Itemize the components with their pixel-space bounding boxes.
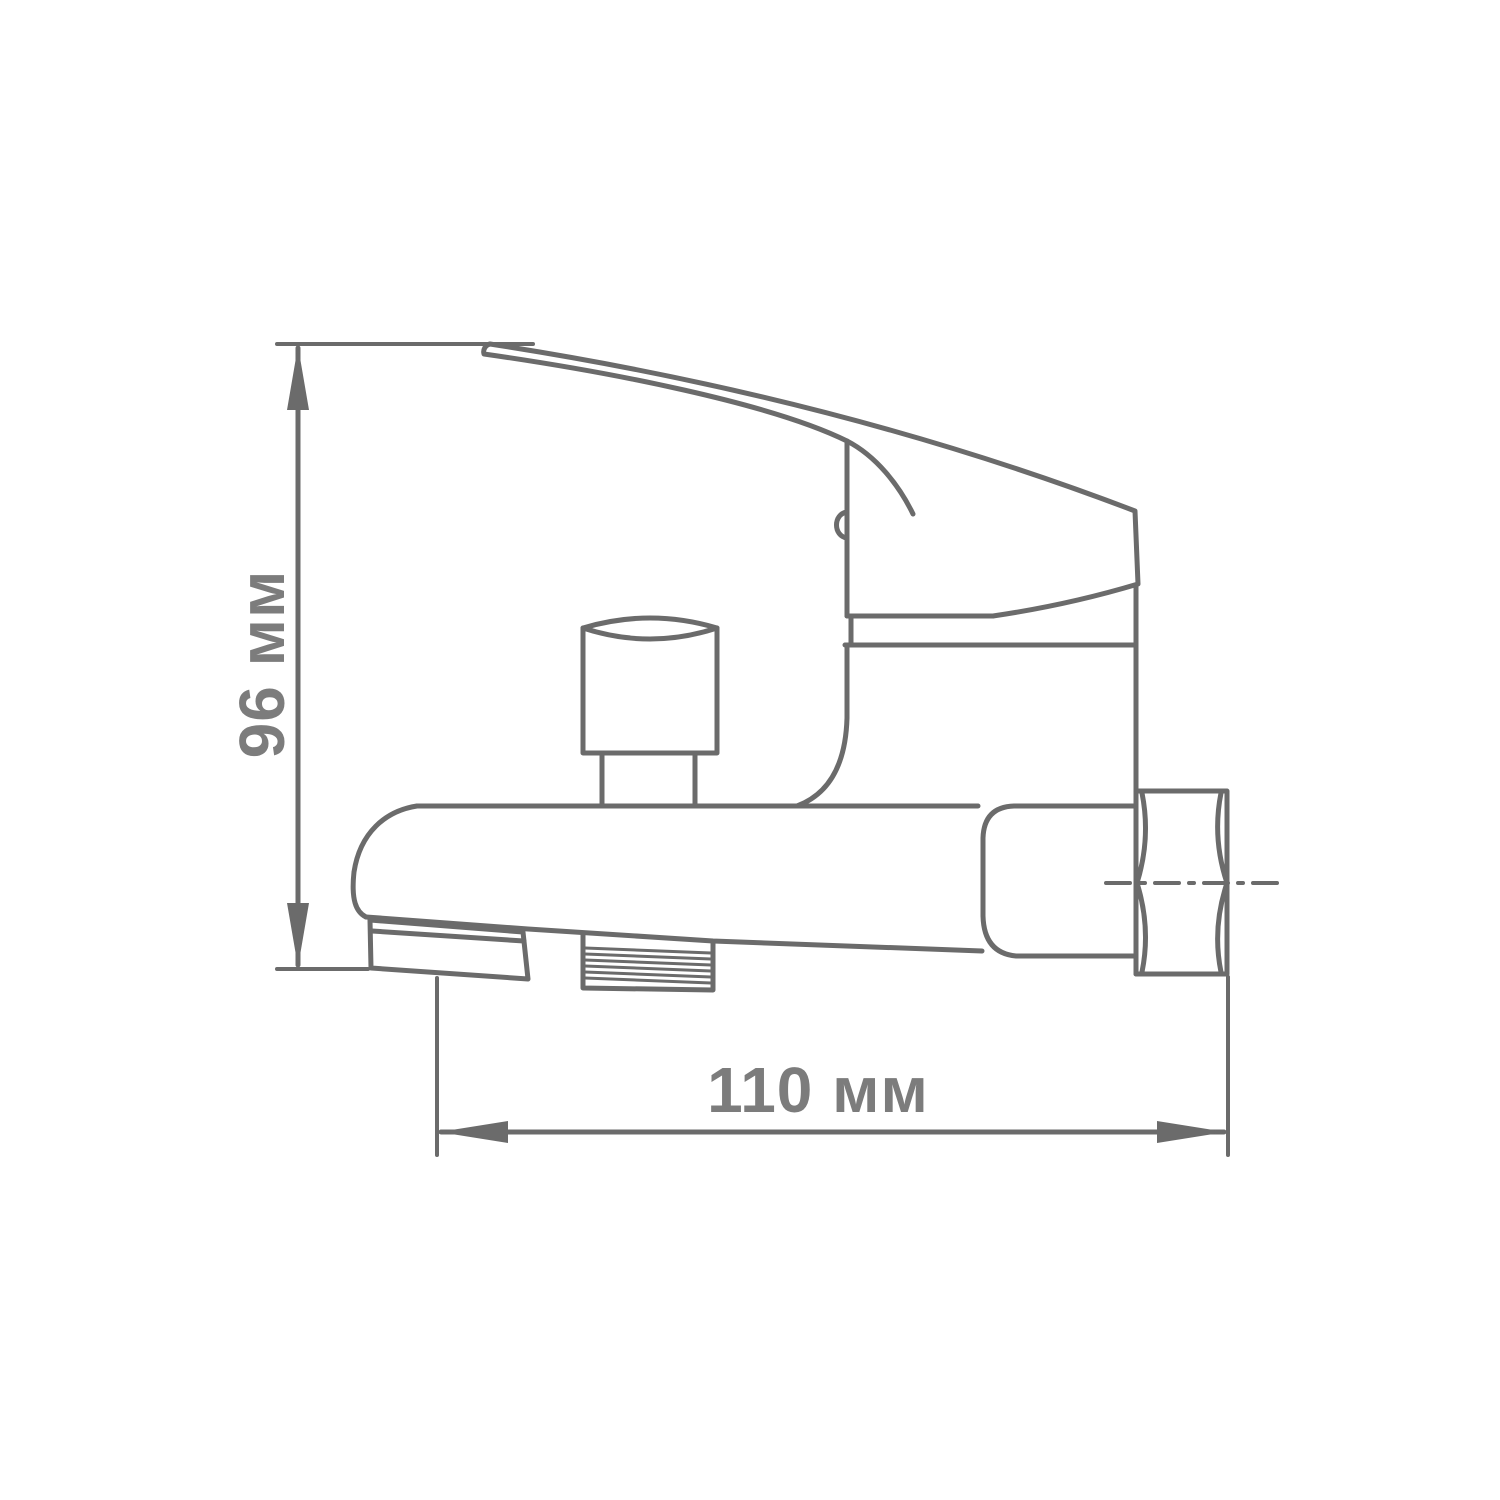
height-arrow-down (287, 903, 309, 967)
diverter-knob-stem (602, 753, 695, 805)
spout-left-end (353, 806, 417, 917)
width-arrow-left (439, 1121, 508, 1143)
dimension-arrows (287, 346, 1226, 1143)
diverter-knob-top-rim (583, 618, 717, 639)
faucet-dimension-drawing: 96 мм 110 мм (0, 0, 1500, 1500)
height-arrow-up (287, 346, 309, 410)
faucet-drawing (353, 344, 1280, 990)
dimension-annotations: 96 мм 110 мм (226, 344, 1228, 1155)
lever-handle-top-edge (490, 344, 1138, 616)
extension-lines (277, 344, 1228, 1155)
width-arrow-right (1157, 1121, 1226, 1143)
spout-tip (370, 920, 528, 979)
body-lower-left (797, 645, 847, 806)
width-dimension-label: 110 мм (707, 1054, 929, 1126)
drawing-canvas: 96 мм 110 мм (0, 0, 1500, 1500)
diverter-knob (583, 628, 717, 753)
height-dimension-label: 96 мм (226, 570, 298, 759)
cap-ring (845, 616, 1136, 645)
spout-bottom-edge (366, 917, 982, 951)
shower-hose-thread-lines (585, 948, 711, 983)
